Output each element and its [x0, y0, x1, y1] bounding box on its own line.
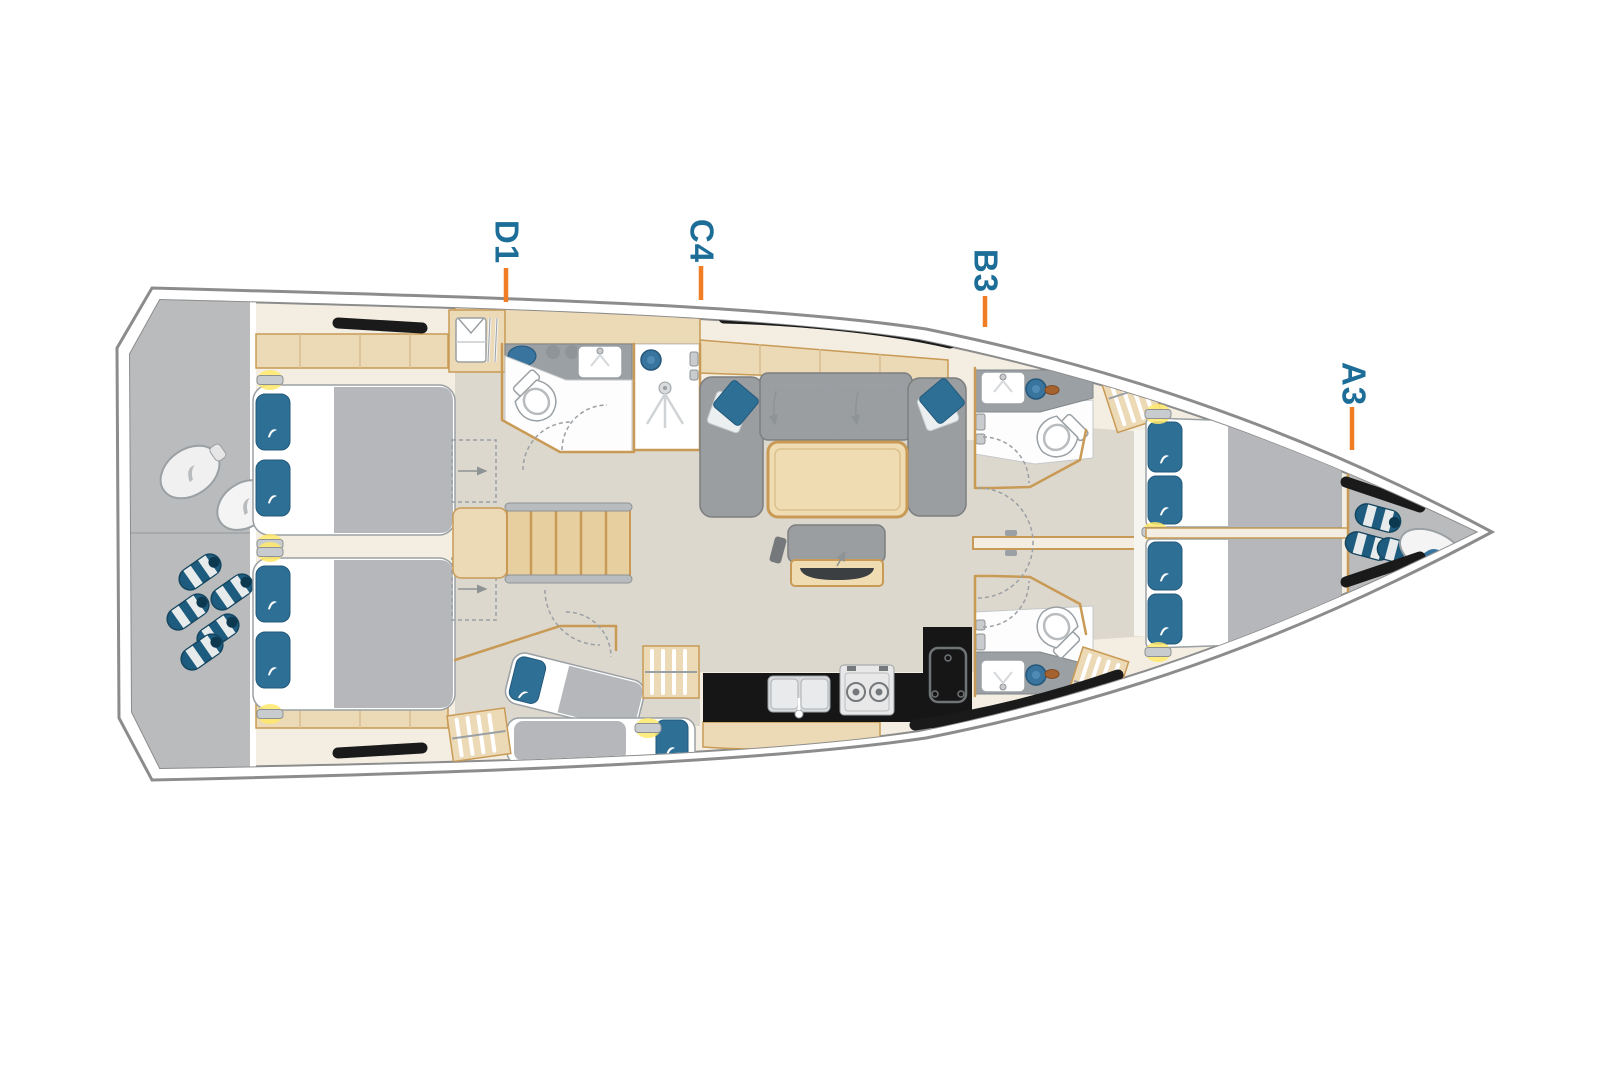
hull-window	[338, 323, 422, 328]
shower-drain	[641, 350, 661, 370]
yacht-floor-plan: D1 C4 B3 A3	[0, 0, 1620, 1080]
reading-light-icon	[257, 542, 283, 562]
cabin-label-b3: B3	[968, 249, 1005, 293]
hull-window	[338, 748, 422, 753]
cabin-label-d1: D1	[489, 220, 526, 264]
washbasin-icon	[981, 660, 1025, 692]
reading-light-icon	[1145, 404, 1171, 424]
reading-light-icon	[257, 704, 283, 724]
aft-cabin-starboard	[253, 542, 455, 724]
washbasin-icon	[578, 346, 622, 378]
berth-centerline-divider	[1146, 528, 1348, 538]
soap-dish	[1045, 386, 1059, 395]
reading-light-icon	[635, 718, 661, 738]
reading-light-icon	[257, 370, 283, 390]
reading-light-icon	[1145, 642, 1171, 662]
pillow	[256, 394, 290, 450]
pillow	[1148, 476, 1182, 524]
stove-icon	[840, 665, 894, 715]
cabin-label-a3: A3	[1336, 362, 1373, 406]
hanging-shirt-icon	[456, 318, 486, 362]
wardrobe-slats	[643, 646, 699, 698]
floor-plan-canvas: D1 C4 B3 A3	[0, 0, 1620, 1080]
cabin-label-c4: C4	[684, 219, 721, 263]
saloon-table	[768, 442, 907, 517]
washbasin-icon	[981, 372, 1025, 404]
pillow	[1148, 542, 1182, 590]
pillow	[256, 632, 290, 688]
shower-drain	[1026, 665, 1046, 685]
companionway-stairs	[453, 503, 632, 583]
pillow	[256, 460, 290, 516]
pillow	[1148, 594, 1182, 644]
shower-drain	[1026, 379, 1046, 399]
sofa-back-bench	[760, 373, 912, 440]
pillow	[256, 566, 290, 622]
soap-dish	[1045, 670, 1059, 679]
galley-sink-icon	[768, 676, 830, 718]
wardrobe-slats	[447, 708, 511, 762]
pillow	[1148, 422, 1182, 472]
aft-cabin-port	[253, 370, 455, 554]
